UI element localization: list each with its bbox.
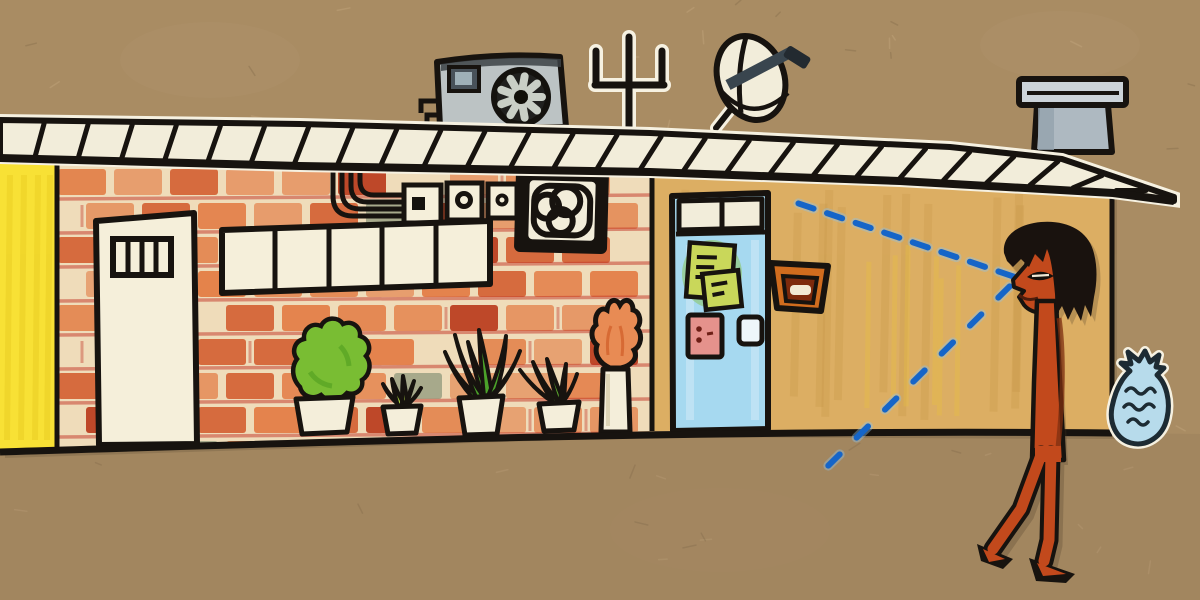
brick [534, 339, 582, 365]
paper-blotch [980, 11, 1140, 79]
yellow-streak [7, 175, 10, 440]
person-hip [1035, 446, 1061, 462]
ac-unit [421, 55, 566, 127]
building-wall [0, 155, 1112, 467]
brick [506, 305, 554, 331]
brick [198, 339, 246, 365]
tan-streak [825, 190, 829, 417]
sticky-note-paper [702, 270, 742, 310]
plant-pot [459, 396, 503, 435]
window-band-glass [222, 221, 490, 293]
illustration-stage [0, 0, 1200, 600]
plant-pot [539, 402, 579, 431]
fan-blade [529, 103, 537, 110]
meter-box-switch [412, 197, 425, 210]
brick [170, 169, 218, 195]
brick [226, 373, 274, 399]
door-handle [739, 317, 762, 344]
brick [282, 169, 330, 195]
pedestal-column [601, 369, 630, 432]
tan-streak [838, 207, 842, 400]
fan-vent [514, 166, 609, 254]
tan-streak [1015, 193, 1019, 409]
doorbell-dot [696, 326, 702, 332]
ac-unit-panel-inner [455, 72, 472, 85]
doorbell-plate [688, 315, 722, 357]
brick [226, 305, 274, 331]
brick [198, 407, 246, 433]
electrical-boxes [404, 183, 517, 223]
mailbox [771, 263, 828, 311]
tan-streak [994, 198, 998, 412]
chimney [1019, 79, 1126, 152]
brick [394, 305, 442, 331]
meter-box [447, 183, 482, 220]
window-band [222, 221, 490, 293]
mailbox-slot [790, 285, 811, 295]
plant-pot [296, 397, 353, 434]
brick [450, 305, 498, 331]
white-door [96, 213, 197, 445]
tan-streak [924, 204, 928, 420]
trash-bag [1111, 351, 1168, 444]
yellow-streak [35, 175, 38, 440]
fan-hub [514, 90, 528, 104]
blue-door [672, 193, 768, 431]
sticky-note [702, 270, 742, 310]
brick [590, 271, 638, 297]
brick [198, 203, 246, 229]
paper-speckle [703, 31, 704, 44]
brick [534, 271, 582, 297]
fan-blade [523, 107, 525, 118]
yellow-streak [21, 175, 24, 440]
paper-blotch [120, 22, 300, 98]
brick [366, 339, 414, 365]
plant-pot [383, 406, 421, 434]
fan-blade [529, 84, 537, 91]
tan-yellow-streak [893, 255, 895, 408]
fan-blade [523, 76, 525, 87]
brick [114, 169, 162, 195]
tan-yellow-streak [939, 278, 941, 415]
flame-plant [592, 300, 641, 368]
fan-blade [501, 90, 511, 94]
brick [254, 407, 302, 433]
yellow-streak [47, 175, 50, 440]
tan-yellow-streak [867, 262, 869, 408]
tan-yellow-streak [906, 245, 908, 406]
fan-blade [511, 106, 517, 116]
person-eye-slit [1032, 275, 1049, 276]
fan-blade [501, 100, 511, 104]
tan-yellow-streak [934, 256, 936, 404]
meter-box [488, 184, 517, 218]
brick [58, 169, 106, 195]
tan-streak [883, 195, 887, 392]
brick [226, 169, 274, 195]
doorbell-mark [707, 333, 713, 334]
chimney-shade [1038, 106, 1054, 150]
illustration-canvas [0, 0, 1200, 600]
doorbell-dot [696, 337, 702, 343]
fan-blade [511, 79, 517, 89]
door-top-rail [676, 232, 765, 234]
